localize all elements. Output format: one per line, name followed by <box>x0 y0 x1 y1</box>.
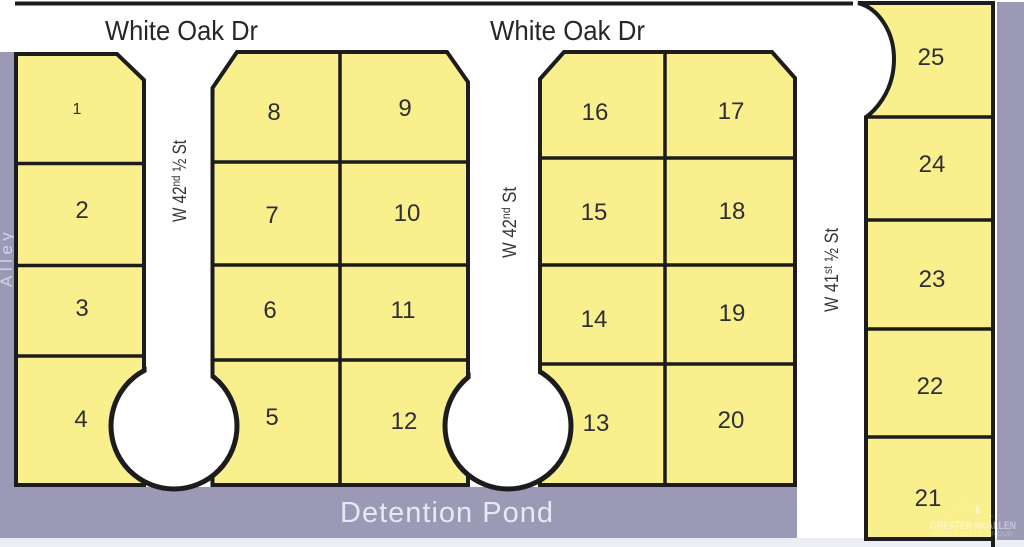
svg-text:25: 25 <box>918 44 945 71</box>
svg-text:Detention Pond: Detention Pond <box>340 497 554 529</box>
svg-text:19: 19 <box>719 300 746 327</box>
svg-text:12: 12 <box>391 408 418 435</box>
svg-text:White Oak Dr: White Oak Dr <box>490 15 645 46</box>
svg-text:20: 20 <box>718 407 745 434</box>
svg-text:White Oak Dr: White Oak Dr <box>105 15 258 46</box>
svg-text:4: 4 <box>74 406 87 433</box>
svg-text:6: 6 <box>263 297 276 324</box>
svg-text:11: 11 <box>391 297 416 324</box>
svg-text:2: 2 <box>75 197 88 224</box>
svg-text:9: 9 <box>398 95 411 122</box>
svg-text:8: 8 <box>267 99 280 126</box>
svg-text:5: 5 <box>265 404 278 431</box>
svg-text:REAL ESTATE GROUP: REAL ESTATE GROUP <box>933 531 1013 538</box>
svg-text:14: 14 <box>581 306 608 333</box>
svg-text:15: 15 <box>581 199 608 226</box>
svg-text:21: 21 <box>915 485 942 512</box>
svg-text:W 42nd St: W 42nd St <box>499 186 521 258</box>
svg-text:16: 16 <box>582 99 609 126</box>
svg-text:7: 7 <box>265 202 278 229</box>
svg-text:18: 18 <box>719 198 746 225</box>
svg-text:23: 23 <box>919 266 946 293</box>
svg-text:Alley: Alley <box>0 229 16 287</box>
svg-text:24: 24 <box>919 151 946 178</box>
svg-text:13: 13 <box>583 410 610 437</box>
svg-text:1: 1 <box>73 101 82 118</box>
svg-text:17: 17 <box>718 98 745 125</box>
svg-text:10: 10 <box>394 200 421 227</box>
svg-text:3: 3 <box>75 295 88 322</box>
svg-text:22: 22 <box>917 373 944 400</box>
